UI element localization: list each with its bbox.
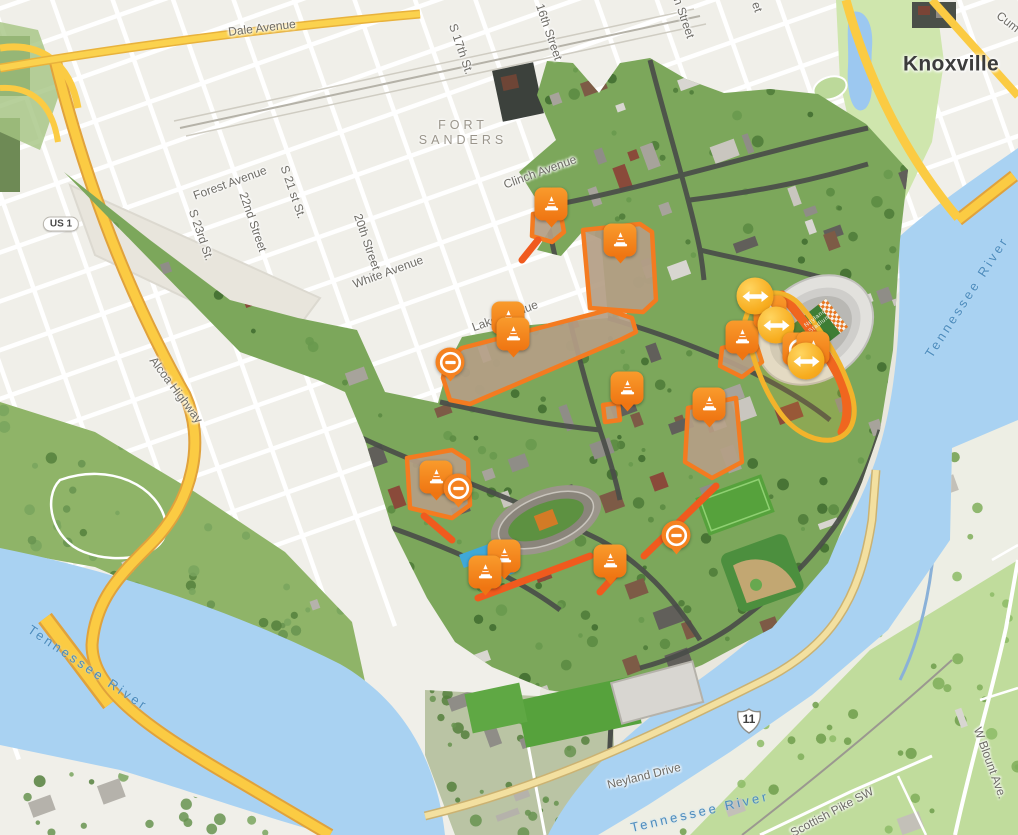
map-base-layer — [0, 0, 1018, 835]
construction-cone-marker[interactable] — [693, 388, 726, 421]
two-way-detour-marker[interactable] — [788, 343, 825, 380]
road-closed-marker[interactable] — [444, 474, 473, 503]
traffic-cone-icon — [697, 392, 721, 416]
construction-cone-marker[interactable] — [469, 556, 502, 589]
construction-cone-marker[interactable] — [497, 318, 530, 351]
road-closed-marker[interactable] — [436, 348, 465, 377]
two-way-arrows-icon — [792, 347, 820, 375]
traffic-cone-icon — [473, 560, 497, 584]
traffic-cone-icon — [598, 549, 622, 573]
traffic-cone-icon — [539, 192, 563, 216]
construction-cone-marker[interactable] — [604, 224, 637, 257]
construction-cone-marker[interactable] — [611, 372, 644, 405]
road-closed-marker[interactable] — [662, 521, 691, 550]
construction-cone-marker[interactable] — [594, 545, 627, 578]
no-entry-icon — [664, 523, 688, 547]
traffic-cone-icon — [501, 322, 525, 346]
traffic-cone-icon — [615, 376, 639, 400]
no-entry-icon — [438, 350, 462, 374]
campus-map[interactable]: Dale AvenueForest AvenueWhite AvenueClin… — [0, 0, 1018, 835]
no-entry-icon — [446, 476, 470, 500]
traffic-cone-icon — [730, 325, 754, 349]
construction-cone-marker[interactable] — [535, 188, 568, 221]
traffic-cone-icon — [608, 228, 632, 252]
